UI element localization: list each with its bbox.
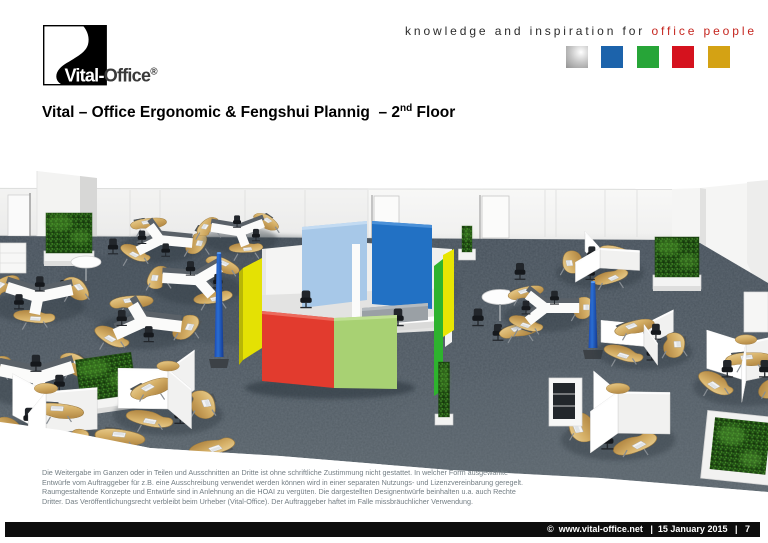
- svg-text:Vital-Office®: Vital-Office®: [65, 65, 159, 85]
